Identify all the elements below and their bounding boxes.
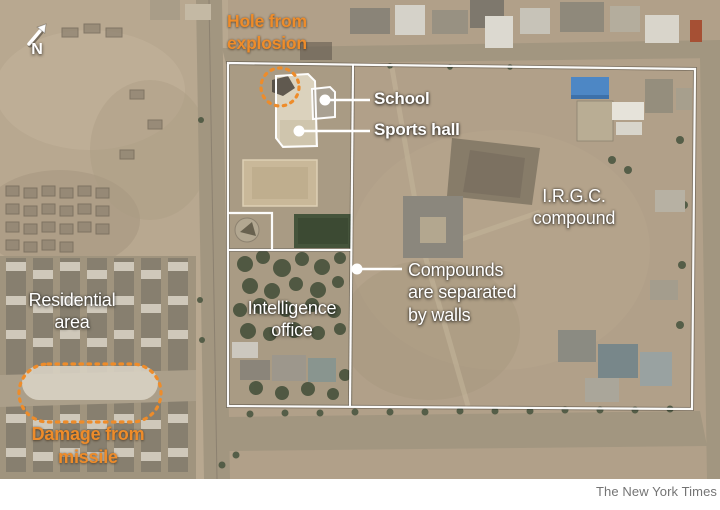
intelligence-label-line1: Intelligence xyxy=(232,297,352,319)
irgc-compound-label: I.R.G.C. compound xyxy=(504,186,644,229)
school-leader-dot xyxy=(320,95,331,106)
hole-from-explosion-label: Hole from explosion xyxy=(227,10,307,54)
missile-damage-area xyxy=(22,366,158,400)
source-credit: The New York Times xyxy=(417,484,717,499)
intelligence-office-label: Intelligence office xyxy=(232,297,352,341)
north-label: N xyxy=(27,41,47,59)
satellite-backdrop xyxy=(0,0,720,479)
residential-area-label: Residential area xyxy=(12,290,132,333)
annotated-satellite-graphic: Hole from explosion School Sports hall I… xyxy=(0,0,720,510)
damage-from-missile-label: Damage from missile xyxy=(13,423,163,469)
walls-label-line1: Compounds xyxy=(408,259,516,281)
sports-hall-leader-dot xyxy=(294,126,305,137)
residential-label-line1: Residential xyxy=(12,290,132,312)
school-label: School xyxy=(374,90,429,108)
walls-label-line3: by walls xyxy=(408,304,516,326)
hole-label-line1: Hole from xyxy=(227,10,307,32)
compounds-separated-label: Compounds are separated by walls xyxy=(408,259,516,326)
walls-leader-dot xyxy=(352,264,363,275)
residential-label-line2: area xyxy=(12,312,132,334)
walls-label-line2: are separated xyxy=(408,281,516,303)
damage-label-line1: Damage from xyxy=(13,423,163,446)
hole-label-line2: explosion xyxy=(227,32,307,54)
sports-hall-label: Sports hall xyxy=(374,121,460,139)
intelligence-label-line2: office xyxy=(232,319,352,341)
irgc-label-line1: I.R.G.C. xyxy=(504,186,644,208)
damage-label-line2: missile xyxy=(13,446,163,469)
irgc-label-line2: compound xyxy=(504,208,644,230)
satellite-map xyxy=(0,0,720,479)
bottom-road xyxy=(227,411,707,451)
